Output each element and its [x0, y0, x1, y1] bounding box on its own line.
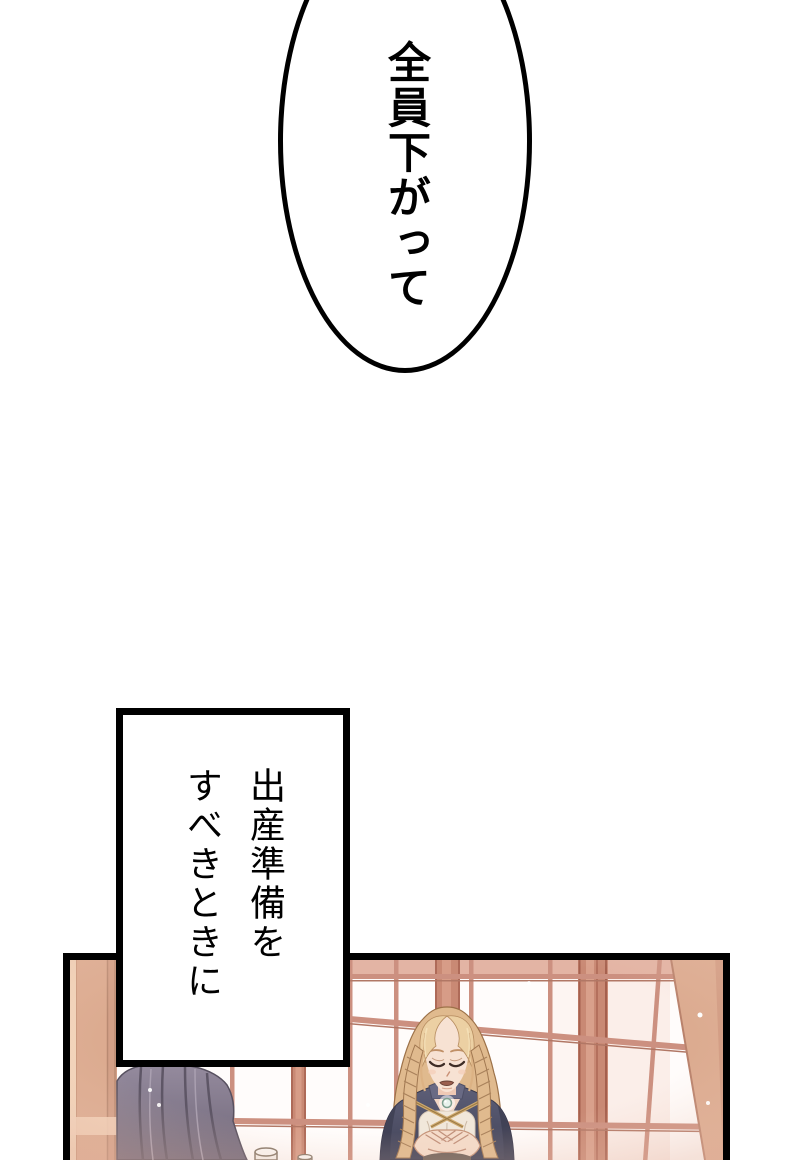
- caption-line-1: 出産準備を: [233, 767, 296, 1001]
- manga-page: 全員下がって: [0, 0, 800, 1160]
- caption-text: 出産準備を すべきときに: [170, 767, 296, 1001]
- caption-box: 出産準備を すべきときに: [116, 708, 350, 1067]
- caption-line-2: すべきときに: [170, 767, 233, 1001]
- speech-bubble-text: 全員下がって: [384, 40, 427, 310]
- speech-bubble: 全員下がって: [278, 0, 532, 373]
